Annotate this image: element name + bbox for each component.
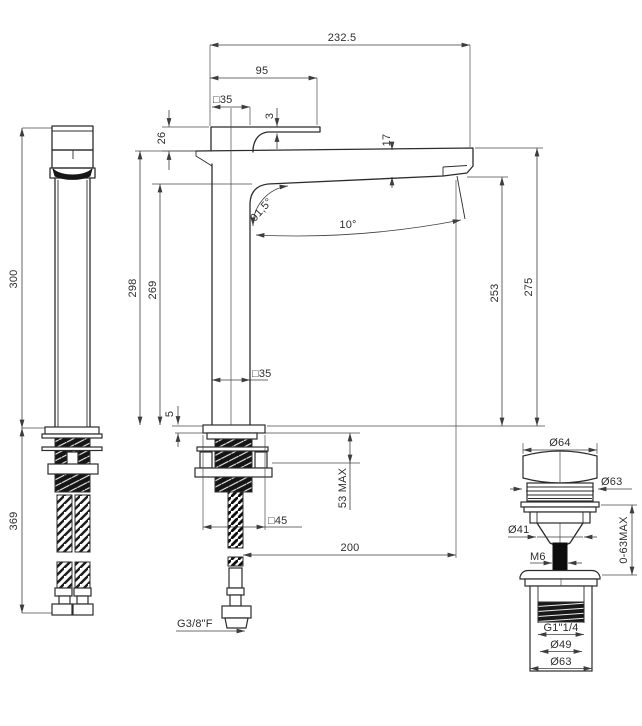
dim-cap-diameter: Ø64 (549, 437, 570, 449)
lever-handle (211, 127, 320, 152)
dim-base-square: □45 (268, 515, 287, 527)
hose-end-nut (73, 604, 93, 615)
front-mounting-nut (195, 468, 272, 477)
dim-spout-top: 95 (256, 65, 269, 77)
dim-body-height: 298 (127, 279, 139, 298)
hose-end-nut (52, 604, 72, 615)
front-view: 232.5 95 □35 3 26 17 91,5° 10° 298 26 (127, 32, 545, 631)
dim-connection-thread: G1"1/4 (543, 622, 578, 634)
dim-side-height: 300 (8, 270, 20, 289)
dim-outlet-angle: 10° (339, 219, 356, 231)
side-collar-shadow (53, 169, 92, 179)
side-handle-top (52, 126, 93, 150)
dim-spout-angle: 91,5° (248, 196, 275, 224)
side-mounting-nut (48, 464, 98, 474)
dim-overall-width: 232.5 (328, 32, 357, 44)
dim-deck-thickness: 53 MAX (337, 467, 349, 508)
dim-body-square: □35 (252, 368, 271, 380)
fixing-rod (228, 492, 243, 548)
dim-outlet-height: 253 (489, 284, 501, 303)
dim-base-thickness: 5 (164, 411, 176, 417)
dim-handle-height: 26 (156, 132, 168, 145)
side-base-plate (45, 427, 99, 434)
inlet-hex-fitting (222, 606, 251, 618)
dim-spout-section: 17 (381, 134, 393, 147)
side-flex-hoses (52, 495, 93, 615)
dim-handle-square: □35 (213, 94, 232, 106)
faucet-body-spout (196, 148, 473, 425)
dim-tip-height: 275 (523, 278, 535, 297)
waste-thread (538, 602, 584, 622)
technical-drawing: 300 369 (0, 0, 642, 726)
dim-side-below-deck: 369 (8, 512, 20, 531)
dim-lip-diameter: Ø63 (601, 476, 622, 488)
waste-view: Ø64 Ø63 Ø41 M6 (508, 437, 637, 671)
waste-deck-plate (520, 571, 600, 580)
dim-lever-gap: 3 (264, 113, 276, 119)
dim-underside-height: 269 (147, 281, 159, 300)
drawing-sheet: 300 369 (0, 0, 642, 726)
dim-body-diameter: Ø41 (508, 524, 529, 536)
dim-bore-diameter: Ø49 (550, 639, 571, 651)
side-view: 300 369 (8, 126, 102, 615)
dim-flange-diameter: Ø63 (550, 656, 571, 668)
dim-outlet-reach: 200 (341, 542, 360, 554)
dim-deck-range: 0-63MAX (618, 516, 630, 564)
label-inlet-thread: G3/8"F (177, 618, 213, 630)
dim-rod-thread: M6 (530, 551, 546, 563)
front-base-plate (203, 425, 265, 433)
